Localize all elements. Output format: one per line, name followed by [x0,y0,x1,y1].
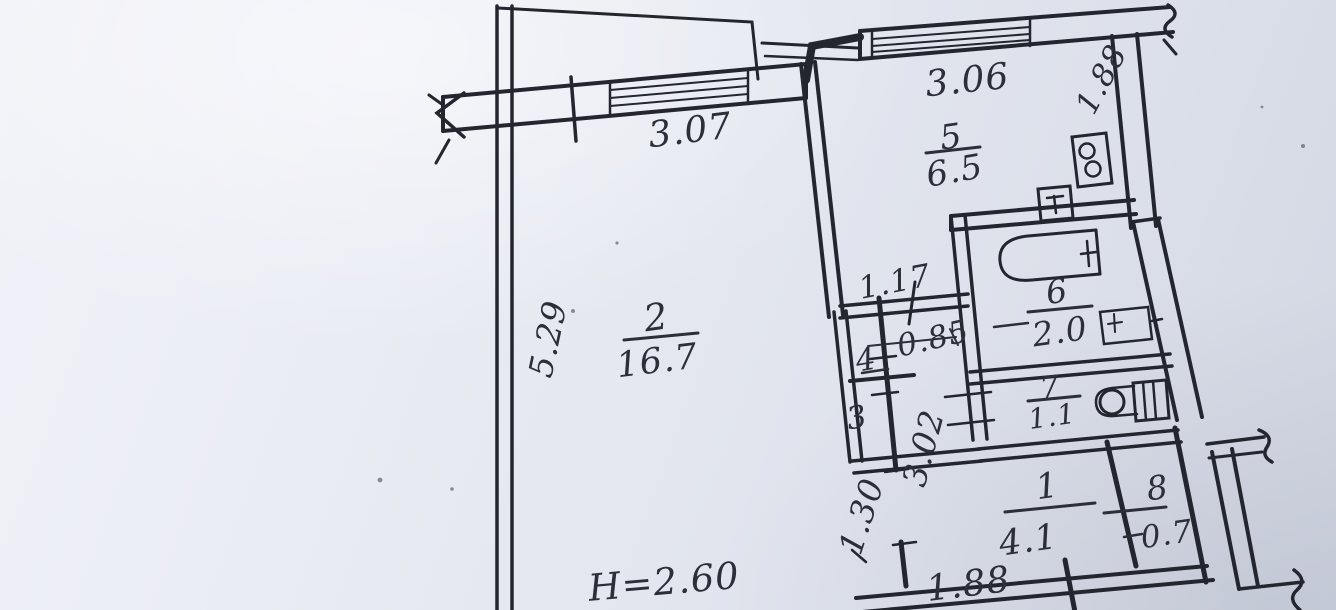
room-8-area: 0.7 [1138,513,1195,556]
balcony-rail [498,8,758,79]
door-jamb-tick [893,542,916,545]
bathtub-tap [1081,252,1096,254]
dimension-corridor: 3.02 [894,406,952,491]
toilet-tank-line [1153,381,1156,419]
speck [1261,106,1264,109]
dimension-entry-bottom: 1.88 [924,559,1013,610]
speck [450,487,454,491]
wall-closet8-right [1175,428,1206,582]
washbasin-tap [1114,314,1115,332]
stove-icon [1072,133,1112,187]
room-5-area: 6.5 [923,146,986,195]
dimension-kitchen-side: 1.88 [1069,39,1135,120]
wall-far-right-cap-bottom [1239,582,1303,589]
wall-far-right-cap-top [1207,437,1264,444]
room-8-number: 8 [1144,467,1171,509]
room-7-area: 1.1 [1026,397,1078,436]
wall-divider-inner [815,62,843,315]
wall-right-kitchen-outer [1137,34,1156,226]
room-6-area: 2.0 [1029,308,1090,354]
floor-plan-drawing: 3.07 3.06 1.88 5.29 1.17 0.85 3.02 1.30 … [0,0,1336,610]
floor-plan-photo: 3.07 3.06 1.88 5.29 1.17 0.85 3.02 1.30 … [0,0,1336,610]
dimension-living-side: 5.29 [521,297,575,381]
wall-right-bath-outer [1158,219,1202,417]
door-jamb-tick [872,392,898,395]
stove-burner-icon [1086,162,1101,177]
speck [1301,144,1305,148]
toilet-tank-line [1143,382,1146,420]
wall-break-squiggle [1293,570,1302,610]
room-1-area: 4.1 [996,517,1061,565]
wall-divider-outer [801,64,829,317]
wall-break-squiggle [1259,430,1272,462]
leader-dash [994,323,1028,327]
window-hatch-line [872,34,1030,46]
dimension-living-top: 3.07 [646,105,735,156]
kitchen-sink-tap [1054,196,1056,213]
speck [378,478,383,483]
speck [615,241,618,244]
height-note: H=2.60 [586,554,742,610]
room-1-number: 1 [1033,465,1062,508]
toilet-icon [1133,380,1169,421]
wall-entry-outer [856,566,1207,598]
wall-bath-top-outer [951,200,1134,216]
closet-4-number: 4 [852,341,880,380]
dimension-kitchen-top: 3.06 [923,56,1011,106]
wall-hall-west-lower [901,542,906,586]
labels: 3.07 3.06 1.88 5.29 1.17 0.85 3.02 1.30 … [521,39,1196,610]
speck [571,309,575,313]
wall-hall-west-upper [879,298,896,470]
dimension-passage: 0.85 [894,313,973,365]
wall-break-tail [429,95,443,105]
wall-break-tail [1164,40,1176,54]
wall-break-tail [436,140,449,163]
washbasin-icon [1100,307,1152,344]
dimension-hall-door: 1.30 [831,473,892,559]
room-2-area: 16.7 [614,337,700,387]
stove-burner-icon [1080,144,1095,159]
room-2-number: 2 [640,294,671,340]
entry-door-post [1065,560,1075,610]
wall-entry-inner [862,580,1213,610]
wall-closet8-left [1107,442,1136,566]
fraction-bar-room-8 [1104,507,1166,513]
toilet-bowl-icon [1100,390,1124,414]
